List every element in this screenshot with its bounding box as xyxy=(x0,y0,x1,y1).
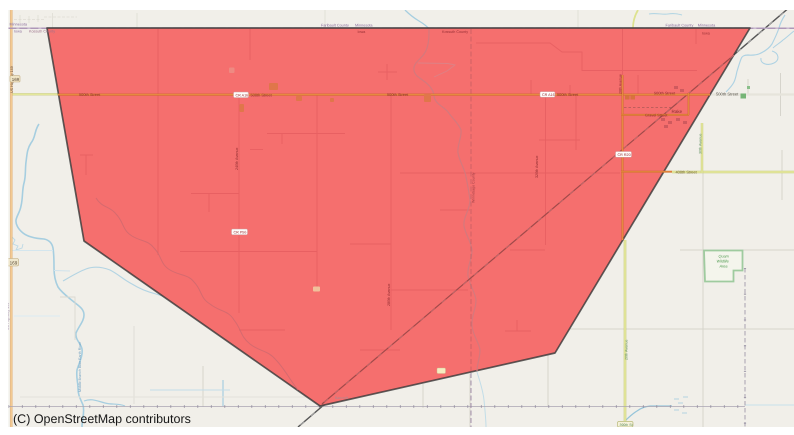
svg-text:500th Street: 500th Street xyxy=(557,92,579,97)
svg-text:Iowa: Iowa xyxy=(702,32,711,36)
svg-text:Wildlife: Wildlife xyxy=(717,260,729,264)
svg-text:30th Avenue: 30th Avenue xyxy=(699,134,703,154)
svg-text:500th Street: 500th Street xyxy=(251,92,273,97)
svg-text:240th Avenue: 240th Avenue xyxy=(235,148,239,171)
svg-text:CR P56: CR P56 xyxy=(234,231,247,235)
svg-text:Kossuth County: Kossuth County xyxy=(442,30,468,34)
svg-text:169: 169 xyxy=(12,77,20,82)
svg-text:Quam: Quam xyxy=(719,255,729,259)
svg-text:20th Avenue: 20th Avenue xyxy=(619,74,623,94)
svg-text:Faribault County: Faribault County xyxy=(666,24,694,28)
svg-text:320th Avenue: 320th Avenue xyxy=(535,156,539,179)
svg-text:500th Street: 500th Street xyxy=(716,91,739,96)
svg-text:Bancroft: Bancroft xyxy=(335,396,348,400)
svg-text:Iowa: Iowa xyxy=(358,30,367,34)
svg-text:CR A16: CR A16 xyxy=(542,93,555,97)
svg-text:Minnesota: Minnesota xyxy=(10,23,28,27)
svg-text:500th Street: 500th Street xyxy=(654,91,676,96)
svg-text:CR A16: CR A16 xyxy=(236,93,249,97)
svg-text:Kossuth County: Kossuth County xyxy=(29,30,55,34)
svg-text:Gravel Street: Gravel Street xyxy=(645,113,668,117)
svg-text:Minnesota: Minnesota xyxy=(355,23,373,27)
svg-text:Middle Branch Blue Earth River: Middle Branch Blue Earth River xyxy=(78,341,82,392)
svg-text:Winnebago County: Winnebago County xyxy=(472,172,476,203)
svg-text:280th Avenue: 280th Avenue xyxy=(387,284,391,307)
svg-text:Area: Area xyxy=(719,265,728,269)
svg-text:500th Street: 500th Street xyxy=(79,92,101,97)
svg-text:169: 169 xyxy=(10,260,18,265)
svg-text:500th Street: 500th Street xyxy=(387,92,409,97)
svg-text:400th Street: 400th Street xyxy=(676,170,698,175)
svg-text:20th Avenue: 20th Avenue xyxy=(625,340,629,360)
svg-text:Iowa: Iowa xyxy=(14,30,23,34)
svg-text:Minnesota: Minnesota xyxy=(698,24,716,28)
svg-text:Rake: Rake xyxy=(672,109,683,114)
svg-text:Faribault County: Faribault County xyxy=(321,23,349,27)
svg-text:(C) OpenStreetMap contributors: (C) OpenStreetMap contributors xyxy=(13,412,191,426)
svg-text:390th St: 390th St xyxy=(620,423,633,427)
svg-text:CR R20: CR R20 xyxy=(618,153,631,157)
